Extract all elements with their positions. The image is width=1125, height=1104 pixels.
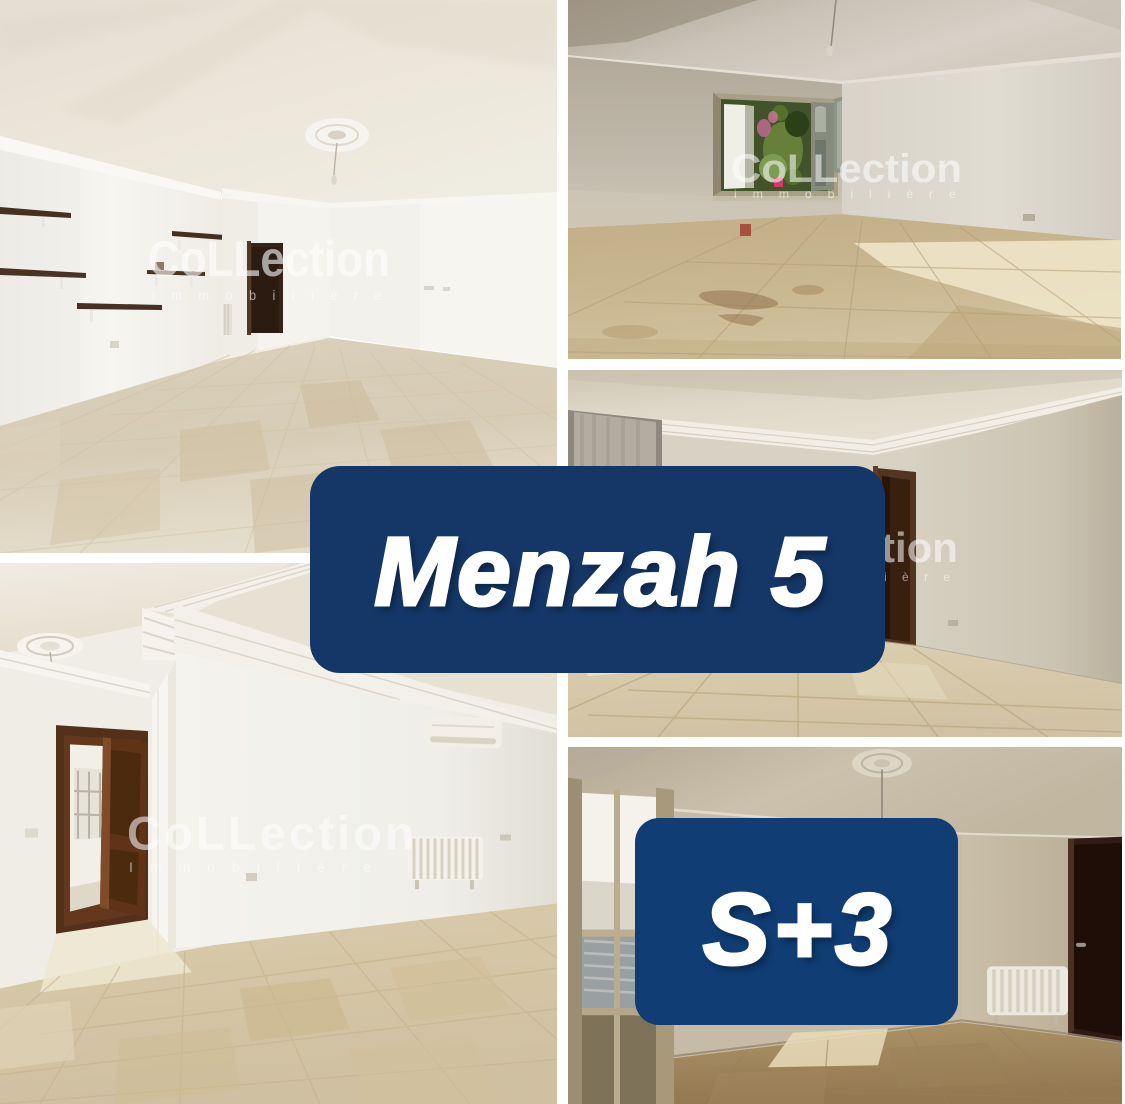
svg-text:CoLLection: CoLLection xyxy=(127,807,414,860)
svg-text:i è r e: i è r e xyxy=(884,570,956,584)
svg-text:i m m o b i l i è r e: i m m o b i l i è r e xyxy=(734,187,962,201)
svg-text:CoLLection: CoLLection xyxy=(148,231,390,287)
svg-text:CoLLection: CoLLection xyxy=(731,147,962,191)
svg-text:tion: tion xyxy=(881,524,958,571)
svg-text:i m m o b i l i è r e: i m m o b i l i è r e xyxy=(152,287,388,303)
svg-text:I m m o b i l i è r e: I m m o b i l i è r e xyxy=(129,859,379,875)
